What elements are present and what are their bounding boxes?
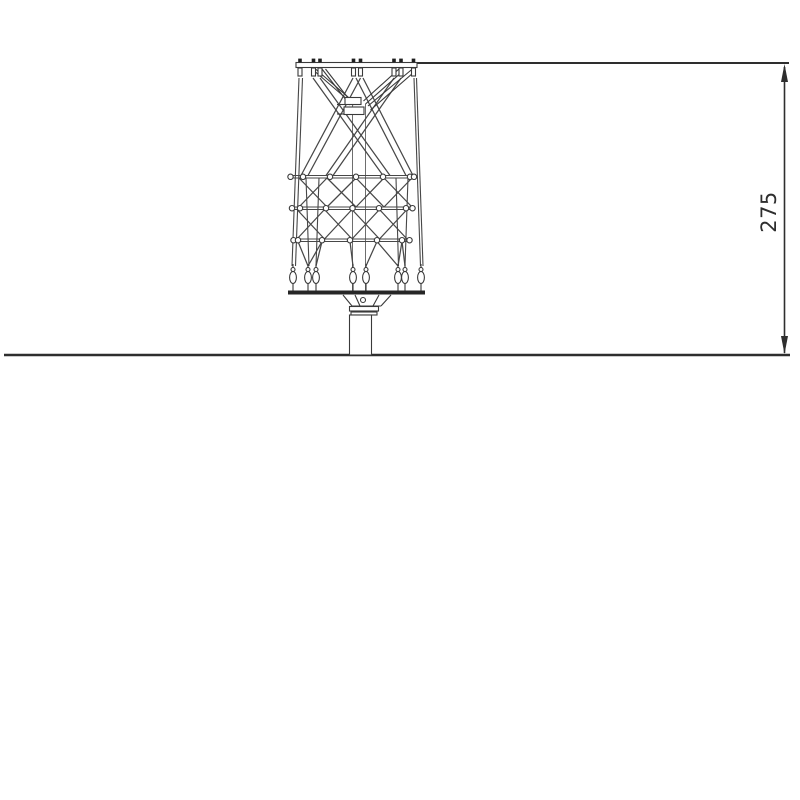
rope-clamps	[298, 68, 416, 76]
bearing-collar	[350, 307, 379, 316]
turnbuckles	[290, 264, 425, 291]
top-ring	[296, 63, 417, 68]
bearing-bracket	[343, 295, 391, 306]
elevation-drawing-canvas: 275	[0, 0, 800, 800]
carousel-net-structure	[288, 59, 425, 355]
height-dimension: 275	[417, 63, 789, 354]
net-inner-vertical-ropes	[306, 178, 408, 266]
technical-drawing-page: 275	[0, 0, 800, 800]
net-ropes-mid-upper	[299, 178, 412, 207]
dimension-arrowhead-top-icon	[781, 64, 788, 82]
pedestal-post	[350, 315, 372, 355]
net-diagonal-ropes-upper	[301, 78, 413, 176]
net-ropes-lower	[298, 242, 405, 267]
height-dimension-label: 275	[757, 191, 781, 233]
dimension-arrowhead-bottom-icon	[781, 336, 788, 354]
top-ring-knobs	[298, 59, 415, 63]
